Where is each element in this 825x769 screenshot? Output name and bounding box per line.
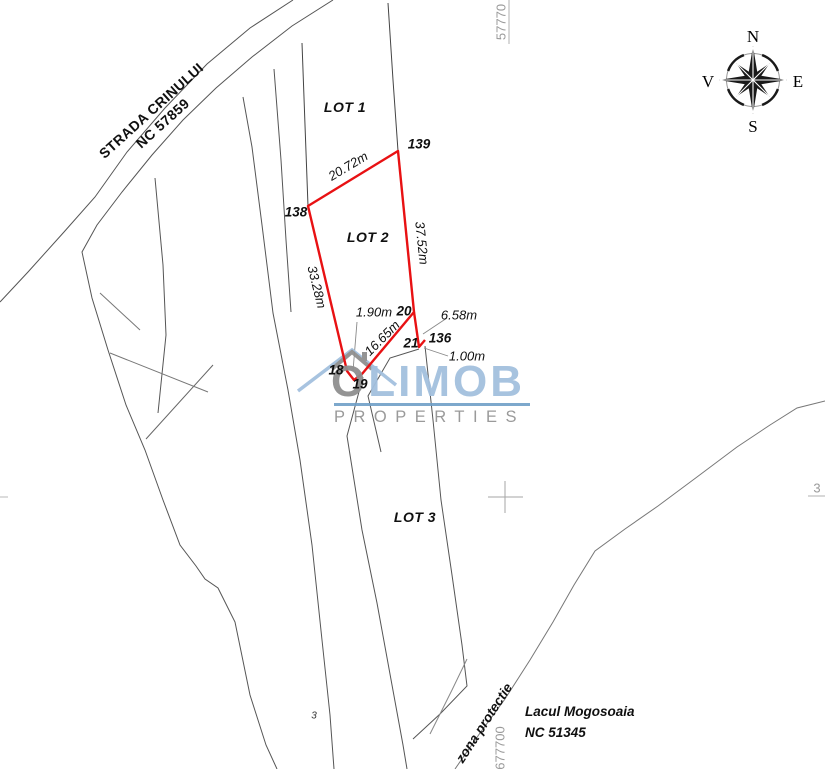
parcel-line	[110, 353, 208, 392]
point-20-label: 20	[396, 304, 411, 319]
lot2-label: LOT 2	[347, 229, 389, 245]
point-136-label: 136	[429, 331, 452, 346]
grid-coordinate-bottom: 677700	[493, 726, 508, 769]
measure-6-58m: 6.58m	[441, 308, 477, 323]
lot1-right-boundary	[388, 3, 398, 151]
measure-1-90m: 1.90m	[356, 305, 392, 320]
compass-v-label: V	[702, 72, 715, 91]
cadastral-plan: N E S V OLIMOB PROPERTIES STRADA CRINULU…	[0, 0, 825, 769]
lot1-left-boundary	[302, 43, 308, 206]
parcel-line	[155, 178, 166, 413]
stray-parcel-number: 3	[311, 711, 317, 722]
point-18-label: 18	[328, 363, 343, 378]
compass-s-label: S	[748, 117, 757, 136]
compass-n-label: N	[747, 27, 759, 46]
lake-nc-number: NC 51345	[525, 723, 635, 744]
street-inner-edge	[82, 0, 333, 769]
parcel-line	[146, 365, 213, 439]
measure-1-00m: 1.00m	[449, 349, 485, 364]
point-138-label: 138	[285, 205, 308, 220]
street-outer-edge	[0, 0, 293, 302]
watermark-rule	[334, 403, 530, 406]
grid-coordinate-top: 57770	[494, 4, 509, 40]
grid-coordinate-right-clipped: 3	[813, 481, 820, 496]
point-21-label: 21	[403, 336, 418, 351]
lot2-red-outline	[308, 151, 414, 380]
parcel-line	[274, 69, 291, 312]
lot1-label: LOT 1	[324, 99, 366, 115]
lake-label: Lacul Mogosoaia NC 51345	[525, 702, 635, 744]
point-19-label: 19	[352, 377, 367, 392]
compass-rose: N E S V	[702, 27, 803, 136]
watermark-tagline: PROPERTIES	[334, 408, 525, 427]
point-139-label: 139	[408, 137, 431, 152]
protection-zone-line	[430, 659, 467, 734]
compass-e-label: E	[793, 72, 803, 91]
leader-1-00m	[424, 348, 448, 356]
parcel-line	[100, 293, 140, 330]
lot3-label: LOT 3	[394, 509, 436, 525]
watermark-brand-rest: LIMOB	[368, 357, 525, 406]
lake-boundary	[455, 401, 825, 769]
lake-name: Lacul Mogosoaia	[525, 702, 635, 723]
